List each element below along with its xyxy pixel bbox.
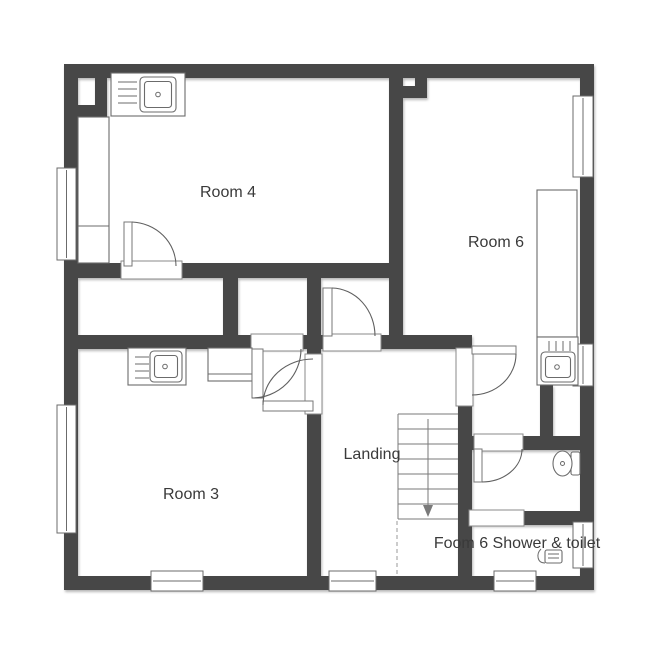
- door-opening-landing-closet: [323, 334, 381, 351]
- counter-room6: [537, 190, 577, 337]
- room-4-label: Room 4: [200, 184, 256, 201]
- wall-room4-bottom: [64, 263, 403, 278]
- toilet-icon: [553, 451, 580, 476]
- chimney-room6-bottom: [389, 86, 427, 98]
- room-3-label: Room 3: [163, 486, 219, 503]
- window: [57, 168, 76, 260]
- wall-closet-divider-2: [307, 278, 321, 335]
- window: [494, 571, 536, 591]
- window: [573, 96, 593, 177]
- sink-icon: [537, 337, 578, 385]
- wall-room4-room6-divider: [389, 64, 403, 337]
- door-opening-toilet-room: [474, 434, 523, 451]
- door-opening-room6-entry: [456, 348, 473, 406]
- counter-room4: [78, 117, 109, 263]
- chimney-room4-bottom: [64, 105, 107, 117]
- landing-label: Landing: [344, 446, 401, 463]
- floor-plan-canvas: Room 4 Room 6 Room 3 Landing Foom 6 Show…: [0, 0, 650, 655]
- wall-sink-stub: [540, 385, 553, 436]
- room-6-label: Room 6: [468, 234, 524, 251]
- stairs-down-arrow-icon: [423, 419, 433, 517]
- door-landing-closet: [323, 288, 375, 336]
- door-room4-closet: [124, 222, 176, 266]
- kitchen-sink-icon: [111, 73, 185, 116]
- door-opening-room3-closet: [251, 334, 303, 351]
- kitchen-sink-icon: [128, 348, 186, 385]
- window: [57, 405, 76, 533]
- door-opening-shower: [469, 510, 524, 526]
- floor-plan-page: Room 4 Room 6 Room 3 Landing Foom 6 Show…: [0, 0, 650, 655]
- door-room6-entry: [472, 346, 516, 395]
- window: [329, 571, 376, 591]
- door-toilet-room: [474, 449, 522, 482]
- shower-toilet-label: Foom 6 Shower & toilet: [434, 535, 601, 552]
- wall-closet-divider-1: [223, 278, 238, 335]
- window: [151, 571, 203, 591]
- cupboard-room3: [208, 348, 252, 381]
